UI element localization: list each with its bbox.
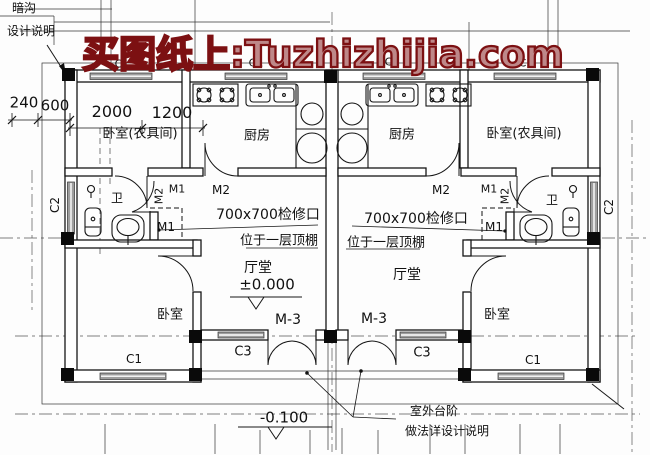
bath-fixtures-left	[85, 186, 144, 246]
step-leaders	[305, 369, 396, 419]
kitchen-fixtures-right	[337, 84, 471, 168]
kitchen-fixtures-left	[193, 84, 327, 168]
dimension-lines	[8, 113, 207, 136]
bath-fixtures-right	[520, 186, 579, 246]
level-markers	[230, 297, 332, 439]
floor-plan-canvas: 暗沟设计说明24060020001200C1C1C1C1卧室(农具间)厨房厨房卧…	[0, 0, 650, 455]
watermark: 买图纸上:Tuzhizhijia.com	[78, 24, 568, 78]
